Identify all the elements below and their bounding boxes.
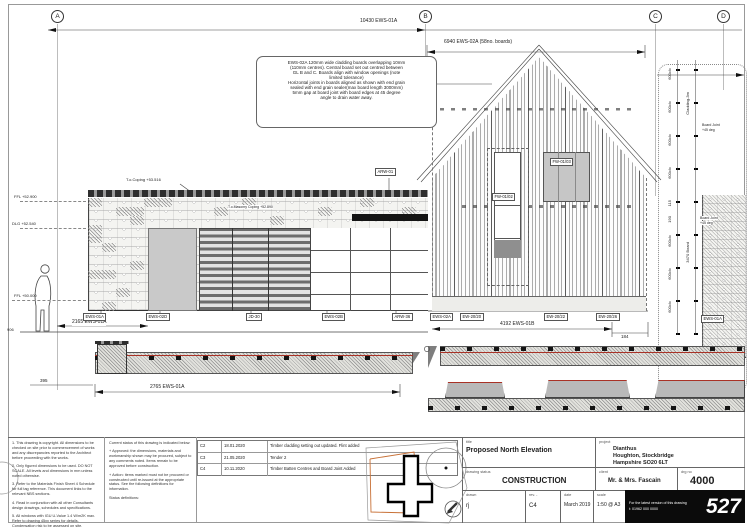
note-line: angle to drain water away.	[261, 95, 432, 100]
note-paragraph: Status definitions:	[109, 496, 192, 501]
level-dlg: DLG +52.540	[12, 222, 36, 227]
tag-row-item: EWS-02A	[430, 313, 453, 321]
drgno-label: drg no	[681, 470, 692, 474]
tag-right-wall: EWS-01A	[701, 315, 724, 323]
rail-zone	[311, 228, 428, 311]
grid-bubble-d: D	[717, 10, 730, 23]
dim-906: 906	[7, 328, 14, 333]
board-joint-note: Board Joint	[702, 123, 720, 127]
tag-arw01: ARW-01	[375, 168, 396, 176]
tag-row-item: EW-20/20	[460, 313, 484, 321]
level-line-upper	[20, 201, 86, 202]
grid-bubble-a: A	[51, 10, 64, 23]
drawn-label: drawn	[466, 493, 476, 497]
louvre-mullion	[232, 228, 233, 311]
dim-600cc: 600c/c	[668, 301, 673, 313]
rev-code: C2	[198, 441, 222, 452]
drawing-status: CONSTRUCTION	[502, 476, 566, 485]
rev-value: C4	[529, 503, 537, 510]
scale-label: scale	[597, 493, 606, 497]
dim-600cc: 600c/c	[668, 134, 673, 146]
grid-label-c: C	[653, 13, 658, 20]
sheet-number-box: For the latest version of this drawing t…	[625, 490, 745, 523]
louvre-screen	[199, 228, 311, 311]
level-line-dlg	[20, 228, 86, 229]
dim-600cc: 600c/c	[668, 268, 673, 280]
level-coping: T.o.Coping +53.516	[126, 178, 161, 183]
project-line1: Dianthus	[613, 446, 637, 452]
dim-600cc: 600c/c	[668, 101, 673, 113]
general-notes-col2: Current status of this drawing is indica…	[109, 441, 192, 504]
drawing-sheet: { "colors": { "cladding_red": "#a93226",…	[0, 0, 750, 530]
project-line2: Houghton, Stockbridge	[613, 453, 674, 459]
dim-chain-inner	[676, 60, 680, 335]
site-building-outline	[388, 456, 432, 516]
dim-600cc: 600c/c	[668, 235, 673, 247]
tag-row-item: EWS-01A	[83, 313, 106, 321]
board-joint-note: +45 deg	[700, 221, 713, 225]
louvre-mullion	[268, 228, 269, 311]
board-joint-note: +45 deg	[702, 128, 715, 132]
client-label: client	[599, 470, 608, 474]
rev-date: 18.01.2020	[222, 441, 268, 452]
dim-chain-outer	[694, 60, 698, 335]
drg-no: 4000	[690, 475, 714, 488]
board-joint-note: Board Joint	[700, 216, 718, 220]
contact-line2: t: 01962 000 0000	[629, 507, 687, 512]
dim-395: 395	[40, 378, 48, 383]
dim-115: 115	[668, 200, 673, 206]
plan-sill	[655, 380, 745, 398]
level-masonry-coping: T.o.Masonry Coping +52.890	[228, 205, 273, 209]
project-line3: Hampshire SO20 6LT	[613, 460, 668, 466]
rev-date: 10.11.2020	[222, 464, 268, 476]
note-paragraph: + Action: items marked must not be procu…	[109, 473, 192, 493]
drawing-title: Proposed North Elevation	[466, 447, 552, 455]
scale-value: 1:50 @ A3	[597, 503, 620, 509]
rev-date: 21.05.2020	[222, 453, 268, 463]
plan-sill	[545, 380, 630, 398]
grid-bubble-c: C	[649, 10, 662, 23]
site-location-plan	[360, 438, 472, 528]
door-panel	[148, 228, 197, 311]
project-label: project	[599, 440, 610, 444]
cladding-note-box: EWS-02A 120mm wide cladding boards overl…	[256, 56, 437, 128]
general-notes-col1: 1. This drawing is copyright. All dimens…	[12, 441, 100, 532]
lintel-bar	[352, 214, 428, 221]
level-line-lower	[12, 300, 86, 301]
tag-fw0102: FW-01/02	[492, 193, 515, 201]
sheet-number: 527	[706, 495, 741, 519]
dim-3470-board: 3470 Board	[686, 242, 691, 263]
wall-coping-band	[88, 190, 428, 197]
tag-row-item: EW-20/26	[596, 313, 620, 321]
dim-190: 190	[668, 216, 673, 223]
plan-sill	[445, 382, 505, 398]
client-name: Mr. & Mrs. Fascain	[608, 478, 661, 485]
title-label: title	[466, 440, 472, 444]
grid-bubble-b: B	[419, 10, 432, 23]
rev-label: rev. -	[529, 493, 537, 497]
tag-row-item: ARW-36	[392, 313, 413, 321]
date-label: date	[564, 493, 571, 497]
tag-row-item: EW-20/22	[544, 313, 568, 321]
dim-600cc: 600c/c	[668, 68, 673, 80]
dim-plan-left: 2765 EWS-01A	[150, 385, 184, 391]
dim-gable-base: 4192 EWS-01B	[500, 322, 534, 328]
note-paragraph: 5. All windows with IGU U-Value 1.4 W/m2…	[12, 514, 100, 529]
dim-cladding-3m: Cladding-3m	[686, 92, 691, 115]
date-value: March 2019	[564, 503, 590, 509]
rev-code: C3	[198, 453, 222, 463]
level-ffl-upper: FFL +52.900	[14, 195, 37, 200]
level-ffl-lower: FFL +50.000	[14, 294, 37, 299]
grid-label-d: D	[721, 13, 726, 20]
status-label: drawing status	[466, 470, 490, 474]
note-paragraph: 3. Refer to the Materials Finish Sheet 4…	[12, 482, 100, 497]
grid-label-b: B	[423, 13, 427, 20]
rev-code: C4	[198, 464, 222, 476]
dim-600cc: 600c/c	[668, 167, 673, 179]
tag-row-item: EWS-02B	[322, 313, 345, 321]
dim-gable-span: 6940 EWS-02A (58no. boards)	[444, 40, 512, 46]
tag-fw0103: FW-01/03	[550, 158, 573, 166]
note-paragraph: 2. Only figured dimensions to be used. D…	[12, 464, 100, 479]
tag-row-item: JD-30	[246, 313, 262, 321]
scale-figure	[35, 265, 51, 331]
gable-plinth	[432, 296, 646, 311]
drawn-value: rj	[466, 503, 469, 510]
window-fw0102-panel	[494, 240, 521, 258]
contact-line1: For the latest version of this drawing	[629, 501, 687, 506]
note-paragraph: Current status of this drawing is indica…	[109, 441, 192, 446]
dim-top-span: 10430 EWS-01A	[360, 19, 397, 25]
plan-pier	[97, 344, 127, 374]
dim-gable-gap: 184	[621, 334, 629, 339]
note-paragraph: 4. Read in conjunction with all other Co…	[12, 501, 100, 511]
board-joint-row	[440, 108, 638, 111]
note-paragraph: + Approved: the dimensions, materials an…	[109, 449, 192, 469]
grid-label-a: A	[55, 13, 59, 20]
note-paragraph: 1. This drawing is copyright. All dimens…	[12, 441, 100, 461]
tag-row-item: EWS-02D	[146, 313, 170, 321]
